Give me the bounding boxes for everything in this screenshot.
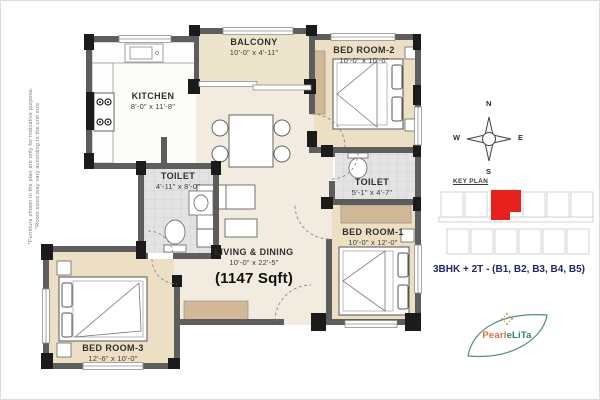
highlighted-unit <box>491 190 521 220</box>
key-plan-title: KEY PLAN <box>453 178 488 185</box>
disclaimer-line-roomsize: *Room sizes may vary according to the un… <box>35 44 42 288</box>
compass: N S W E <box>451 101 527 177</box>
wc-icon-toilet2 <box>348 153 368 178</box>
wardrobe-bedroom1 <box>341 205 411 223</box>
unit-info-text: 3BHK + 2T - (B1, B2, B3, B4, B5) <box>433 264 585 275</box>
kitchen-label: KITCHEN 8'-0" x 11'-8" <box>131 91 175 111</box>
bedroom2-label: BED ROOM-2 10'-0" x 10'-0" <box>333 45 395 65</box>
compass-star-icon <box>451 101 527 177</box>
stove-icon <box>94 93 114 131</box>
balcony-label: BALCONY 10'-0" x 4'-11" <box>230 37 279 57</box>
living-dining-label: LIVING & DINING 10'-0" x 22'-5" (1147 Sq… <box>214 247 293 287</box>
disclaimer-note: *Furniture shown in the plan are only fo… <box>28 44 42 288</box>
bedroom1-label: BED ROOM-1 10'-0" x 12'-0" <box>342 227 404 247</box>
disclaimer-line-furniture: *Furniture shown in the plan are only fo… <box>28 44 35 288</box>
compass-west: W <box>453 133 460 142</box>
compass-south: S <box>486 167 491 176</box>
brand-logo: PearleLiTa <box>461 299 553 369</box>
compass-north: N <box>486 99 491 108</box>
washbasin-icon <box>189 191 213 215</box>
brand-name: PearleLiTa <box>461 330 553 341</box>
coffee-table-icon <box>225 219 257 237</box>
compass-east: E <box>518 133 523 142</box>
bedroom3-label: BED ROOM-3 12'-6" x 10'-0" <box>82 343 144 363</box>
toilet2-label: TOILET 5'-1" x 4'-7" <box>352 177 392 197</box>
tv-unit <box>184 301 248 321</box>
key-plan-graphic <box>437 187 599 263</box>
sink-icon <box>125 44 163 62</box>
total-area: (1147 Sqft) <box>214 270 293 287</box>
floor-plan-page: BALCONY 10'-0" x 4'-11" KITCHEN 8'-0" x … <box>0 0 600 400</box>
wc-icon-toilet1 <box>164 220 186 252</box>
toilet1-label: TOILET 4'-11" x 8'-0" <box>156 171 200 191</box>
